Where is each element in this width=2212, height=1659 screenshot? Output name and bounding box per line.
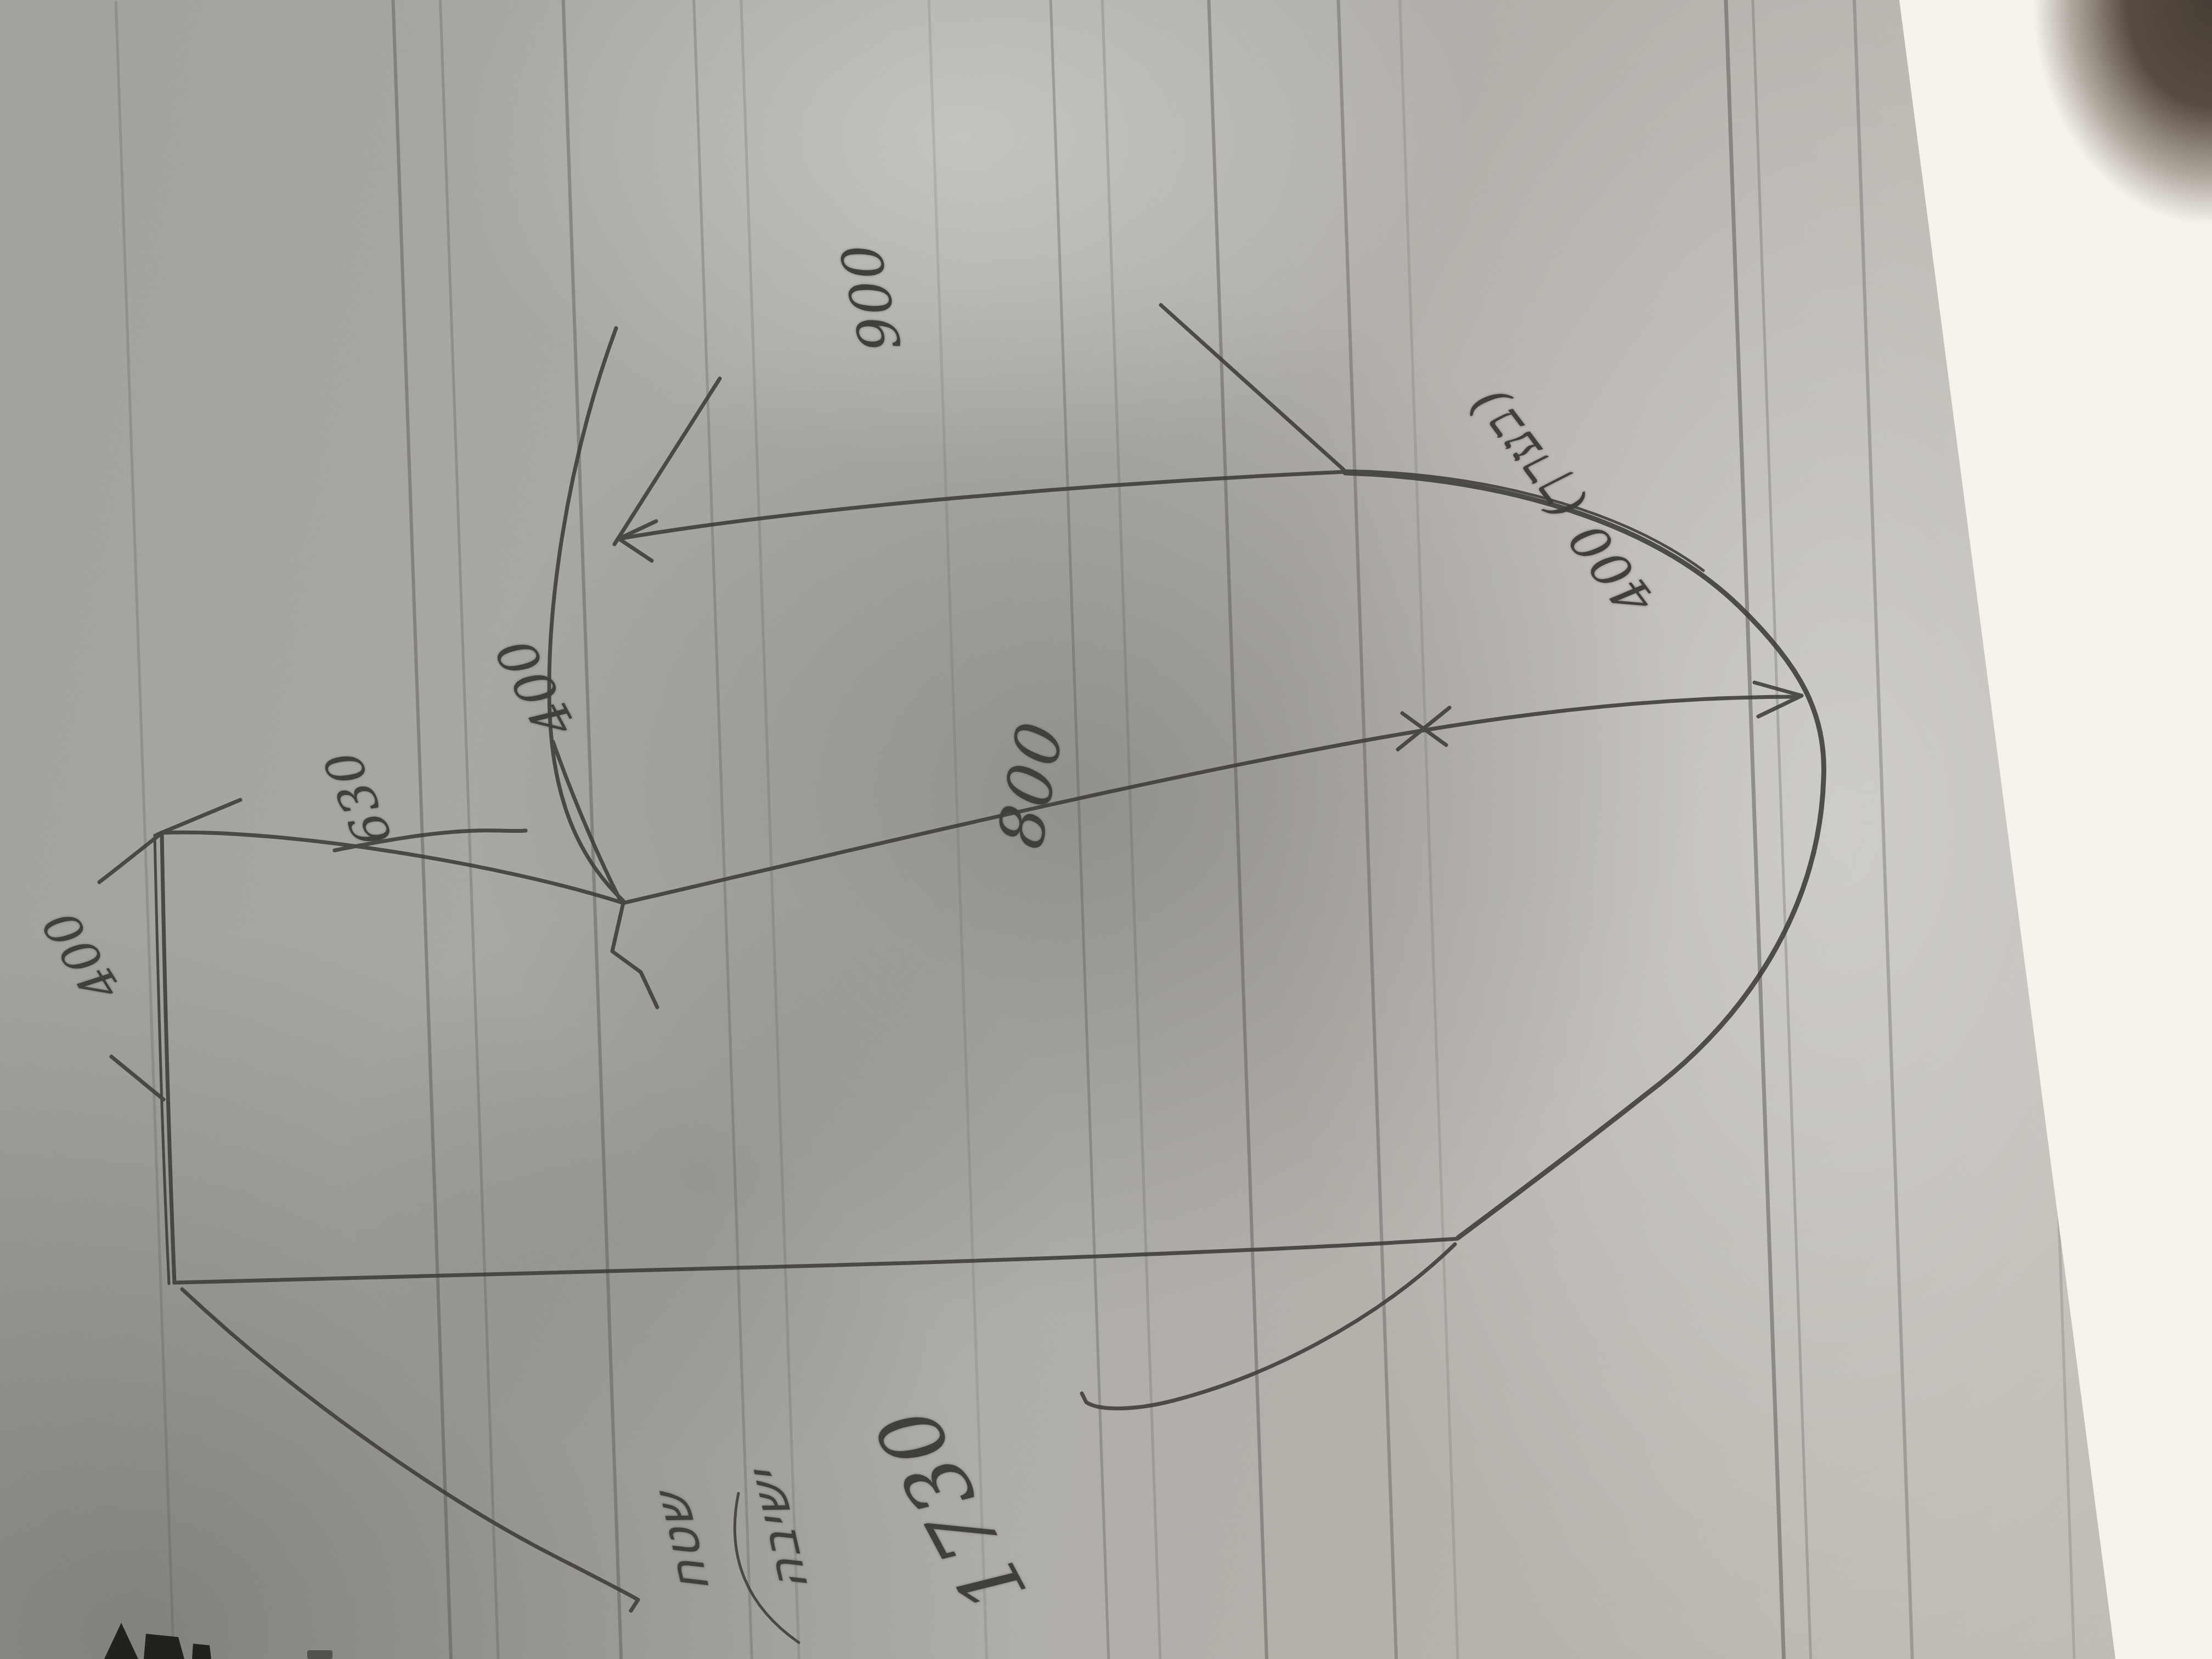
shape-round-end-arc (1345, 473, 1824, 1238)
note-label-seating-area: שטח ישיבה (619, 1465, 840, 1608)
leader-400-offset (553, 742, 620, 900)
sweep-left (182, 1289, 638, 1611)
tick-zigzag-junction (612, 903, 657, 1007)
tick-left-900 (614, 379, 720, 544)
sketch-canvas (0, 0, 2212, 1659)
shape-top-edge (161, 832, 623, 903)
shape-left-edge (162, 833, 174, 1283)
sweep-right (1082, 1244, 1455, 1408)
table-corner-shadow (1964, 0, 2212, 472)
dimension-line-800 (623, 697, 1797, 903)
dimension-line-900 (619, 472, 1345, 539)
cutoff-print-marks (104, 1623, 332, 1659)
tick-left-depth (111, 1057, 163, 1099)
tick-right-900 (1161, 305, 1344, 470)
tick-top-left-corner (157, 800, 240, 834)
shape-bottom-edge (174, 1239, 1457, 1283)
corner-curl (99, 834, 161, 882)
photo-of-hand-drawn-sketch: 900 400 630 800 400 (בערך) 400 1730 שטח … (0, 0, 2212, 1659)
ruled-lines (116, 0, 2074, 1659)
